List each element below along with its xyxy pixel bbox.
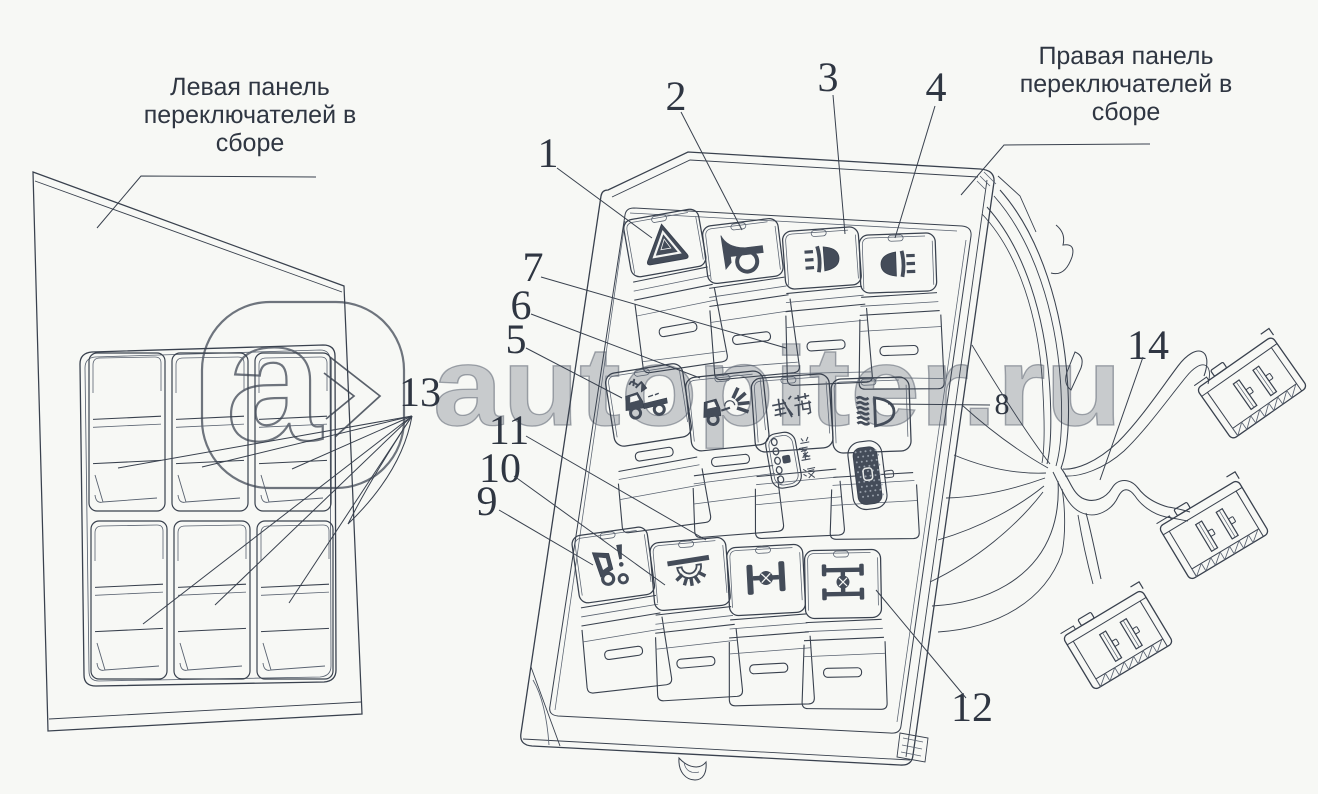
svg-text:13: 13 bbox=[399, 370, 441, 416]
svg-text:12: 12 bbox=[951, 685, 993, 731]
svg-text:переключателей в: переключателей в bbox=[144, 101, 357, 129]
svg-text:сборе: сборе bbox=[1092, 98, 1161, 126]
svg-text:3: 3 bbox=[818, 55, 839, 101]
svg-text:2: 2 bbox=[666, 74, 687, 120]
svg-text:Левая панель: Левая панель bbox=[170, 73, 330, 101]
svg-text:переключателей в: переключателей в bbox=[1020, 70, 1233, 98]
svg-text:7: 7 bbox=[523, 245, 544, 291]
svg-text:Правая панель: Правая панель bbox=[1038, 42, 1213, 70]
svg-text:4: 4 bbox=[926, 65, 947, 111]
svg-text:a: a bbox=[226, 285, 323, 477]
svg-text:11: 11 bbox=[489, 408, 529, 454]
svg-text:autopiter.ru: autopiter.ru bbox=[433, 324, 1122, 449]
svg-text:14: 14 bbox=[1127, 323, 1169, 369]
svg-text:1: 1 bbox=[538, 131, 559, 177]
svg-text:сборе: сборе bbox=[216, 129, 285, 157]
